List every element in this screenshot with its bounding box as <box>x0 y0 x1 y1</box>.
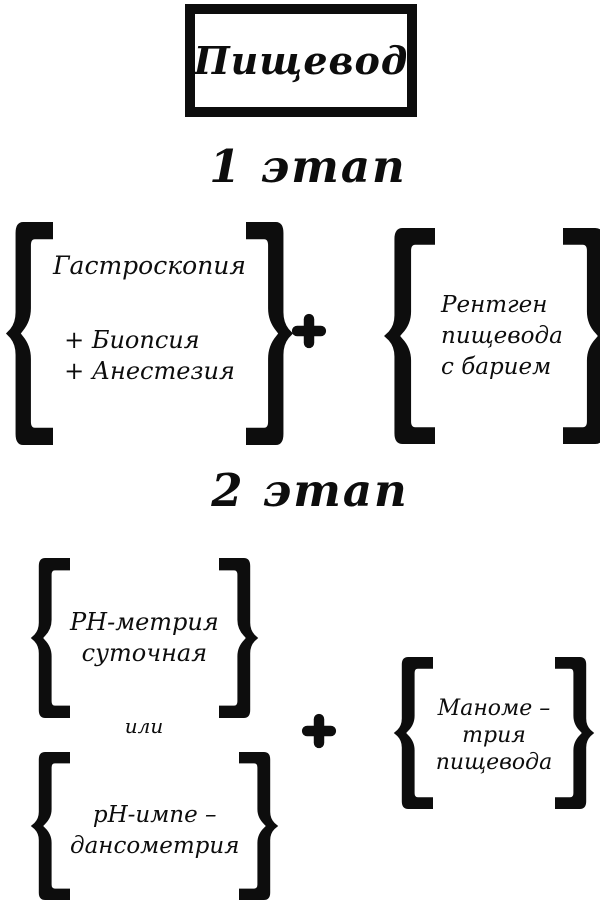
right-brace-icon <box>555 657 595 809</box>
group-gastroscopy: Гастроскопия + Биопсия + Анестезия <box>5 222 251 445</box>
group-manometry-content: Маноме – трия пищевода <box>433 657 555 809</box>
group-xray: Рентген пищевода с барием <box>383 228 589 444</box>
ph-metry-line: PH-метрия <box>70 607 219 638</box>
left-brace-icon <box>30 752 70 900</box>
xray-line: Рентген <box>441 290 547 321</box>
gastroscopy-sub-lines: + Биопсия + Анестезия <box>64 325 235 387</box>
or-label: или <box>30 714 258 738</box>
group-xray-content: Рентген пищевода с барием <box>435 228 563 444</box>
manometry-line: пищевода <box>436 749 553 776</box>
group-ph-metry-content: PH-метрия суточная <box>70 558 219 718</box>
right-brace-icon <box>246 222 294 445</box>
title-box: Пищевод <box>185 4 417 117</box>
left-brace-icon <box>30 558 70 718</box>
plus-icon <box>300 712 338 750</box>
xray-line: пищевода <box>441 321 563 352</box>
group-manometry: Маноме – трия пищевода <box>393 657 595 809</box>
ph-metry-line: суточная <box>82 638 208 669</box>
stage1-label: 1 этап <box>8 140 600 193</box>
left-brace-icon <box>393 657 433 809</box>
xray-line: с барием <box>441 352 551 383</box>
gastroscopy-line: Гастроскопия <box>53 250 246 283</box>
ph-impedance-line: дансометрия <box>70 831 239 862</box>
manometry-line: Маноме – <box>438 695 551 722</box>
diagram-canvas: Пищевод 1 этап Гастроскопия + Биопсия + … <box>0 0 600 906</box>
left-brace-icon <box>383 228 435 444</box>
stage2-label: 2 этап <box>10 464 600 517</box>
right-brace-icon <box>219 558 259 718</box>
right-brace-icon <box>239 752 279 900</box>
right-brace-icon <box>563 228 600 444</box>
plus-icon <box>290 312 328 350</box>
anesthesia-line: + Анестезия <box>64 356 235 387</box>
manometry-line: трия <box>462 722 526 749</box>
group-ph-impedance-content: pH-импе – дансометрия <box>70 752 239 900</box>
biopsy-line: + Биопсия <box>64 325 235 356</box>
title-text: Пищевод <box>194 38 409 83</box>
left-brace-icon <box>5 222 53 445</box>
ph-impedance-line: pH-импе – <box>93 800 217 831</box>
group-gastroscopy-content: Гастроскопия + Биопсия + Анестезия <box>53 222 246 445</box>
group-ph-metry: PH-метрия суточная <box>30 558 258 718</box>
group-ph-impedance: pH-импе – дансометрия <box>30 752 258 900</box>
